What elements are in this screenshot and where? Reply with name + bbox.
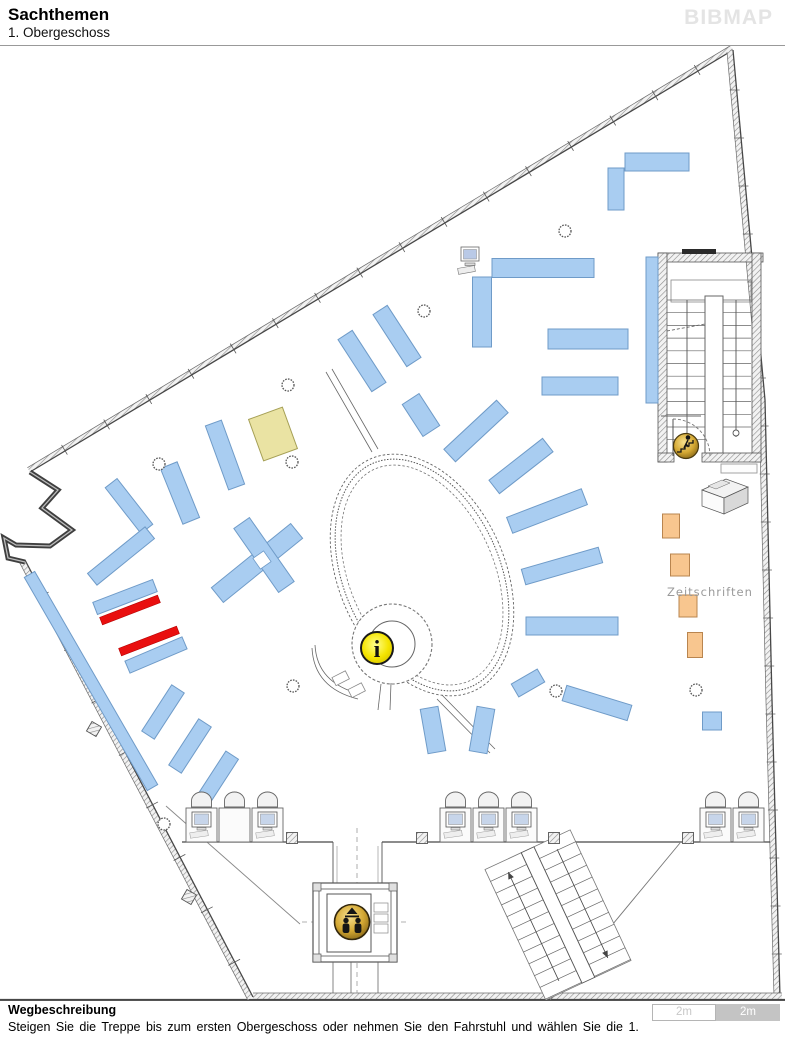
workstation[interactable]: [219, 792, 250, 842]
shelf-blue[interactable]: [338, 330, 386, 391]
shelf-blue[interactable]: [469, 706, 495, 753]
shelf-blue[interactable]: [88, 527, 155, 585]
shelf-blue[interactable]: [526, 617, 618, 635]
shelves-layer: [24, 153, 721, 803]
shelf-blue[interactable]: [703, 712, 722, 730]
computer-stations: [186, 792, 764, 842]
shelf-blue[interactable]: [625, 153, 689, 171]
shelf-blue[interactable]: [169, 719, 212, 773]
shelf-blue[interactable]: [142, 685, 185, 739]
map-scale: 2m2m: [652, 1004, 780, 1019]
elevator-icon[interactable]: [335, 905, 370, 940]
wall-post: [287, 833, 298, 844]
page-title: Sachthemen: [8, 5, 109, 25]
shelf-blue[interactable]: [548, 329, 628, 349]
bibmap-page: Sachthemen 1. Obergeschoss BIBMAP: [0, 0, 785, 1043]
shelf-blue[interactable]: [511, 669, 544, 697]
scale-segment-white: 2m: [652, 1004, 716, 1021]
shelf-blue[interactable]: [562, 685, 632, 720]
shelf-orange[interactable]: [688, 633, 703, 658]
shelf-blue[interactable]: [373, 305, 421, 366]
column-marker: [418, 305, 430, 317]
floor-label: 1. Obergeschoss: [8, 25, 110, 40]
column-marker: [153, 458, 165, 470]
shelf-blue[interactable]: [521, 547, 602, 584]
posts-layer: [86, 721, 693, 904]
shelf-blue[interactable]: [105, 479, 153, 534]
shelf-blue[interactable]: [402, 394, 439, 437]
shelf-orange[interactable]: [663, 514, 680, 538]
shelf-blue[interactable]: [507, 489, 588, 534]
zeitschriften-label: Zeitschriften: [667, 585, 753, 599]
column-marker: [158, 818, 170, 830]
footer: Wegbeschreibung Steigen Sie die Treppe b…: [0, 1000, 785, 1043]
info-icon-glyph: i: [374, 637, 381, 663]
wall-post: [549, 833, 560, 844]
workstation[interactable]: [733, 792, 764, 842]
computer-icon: [458, 247, 479, 274]
route-description: Steigen Sie die Treppe bis zum ersten Ob…: [8, 1020, 668, 1034]
scale-segment-gray: 2m: [716, 1004, 780, 1021]
shelf-blue[interactable]: [542, 377, 618, 395]
column-marker: [559, 225, 571, 237]
workstation[interactable]: [700, 792, 731, 842]
shelf-blue[interactable]: [608, 168, 624, 210]
info-icon[interactable]: i: [361, 632, 393, 664]
header: Sachthemen 1. Obergeschoss BIBMAP: [0, 0, 785, 46]
column-marker: [287, 680, 299, 692]
stairwell-upper: [658, 249, 763, 473]
shelf-blue[interactable]: [160, 462, 199, 524]
workstation[interactable]: [473, 792, 504, 842]
stairs-lower: [485, 830, 631, 1000]
workstation[interactable]: [506, 792, 537, 842]
floor-plan[interactable]: i Zeitschriften: [0, 0, 785, 1043]
shelf-blue[interactable]: [444, 400, 508, 462]
shelf-blue[interactable]: [492, 259, 594, 278]
stairs-up-icon[interactable]: [674, 434, 699, 459]
workstation[interactable]: [252, 792, 283, 842]
column-marker: [550, 685, 562, 697]
shelf-blue[interactable]: [420, 706, 446, 753]
workstation[interactable]: [440, 792, 471, 842]
column-marker: [690, 684, 702, 696]
bibmap-logo: BIBMAP: [684, 6, 773, 30]
shelf-orange[interactable]: [671, 554, 690, 576]
wall-post: [417, 833, 428, 844]
wall-post: [683, 833, 694, 844]
column-marker: [282, 379, 294, 391]
shelf-beige[interactable]: [249, 407, 298, 461]
copier-icon: [702, 479, 748, 514]
footer-heading: Wegbeschreibung: [8, 1003, 116, 1017]
shelf-blue[interactable]: [489, 438, 553, 493]
shelf-blue[interactable]: [473, 277, 492, 347]
shelf-blue[interactable]: [205, 420, 244, 490]
shelf-blue[interactable]: [646, 257, 658, 403]
wall-post: [86, 721, 101, 736]
column-marker: [286, 456, 298, 468]
